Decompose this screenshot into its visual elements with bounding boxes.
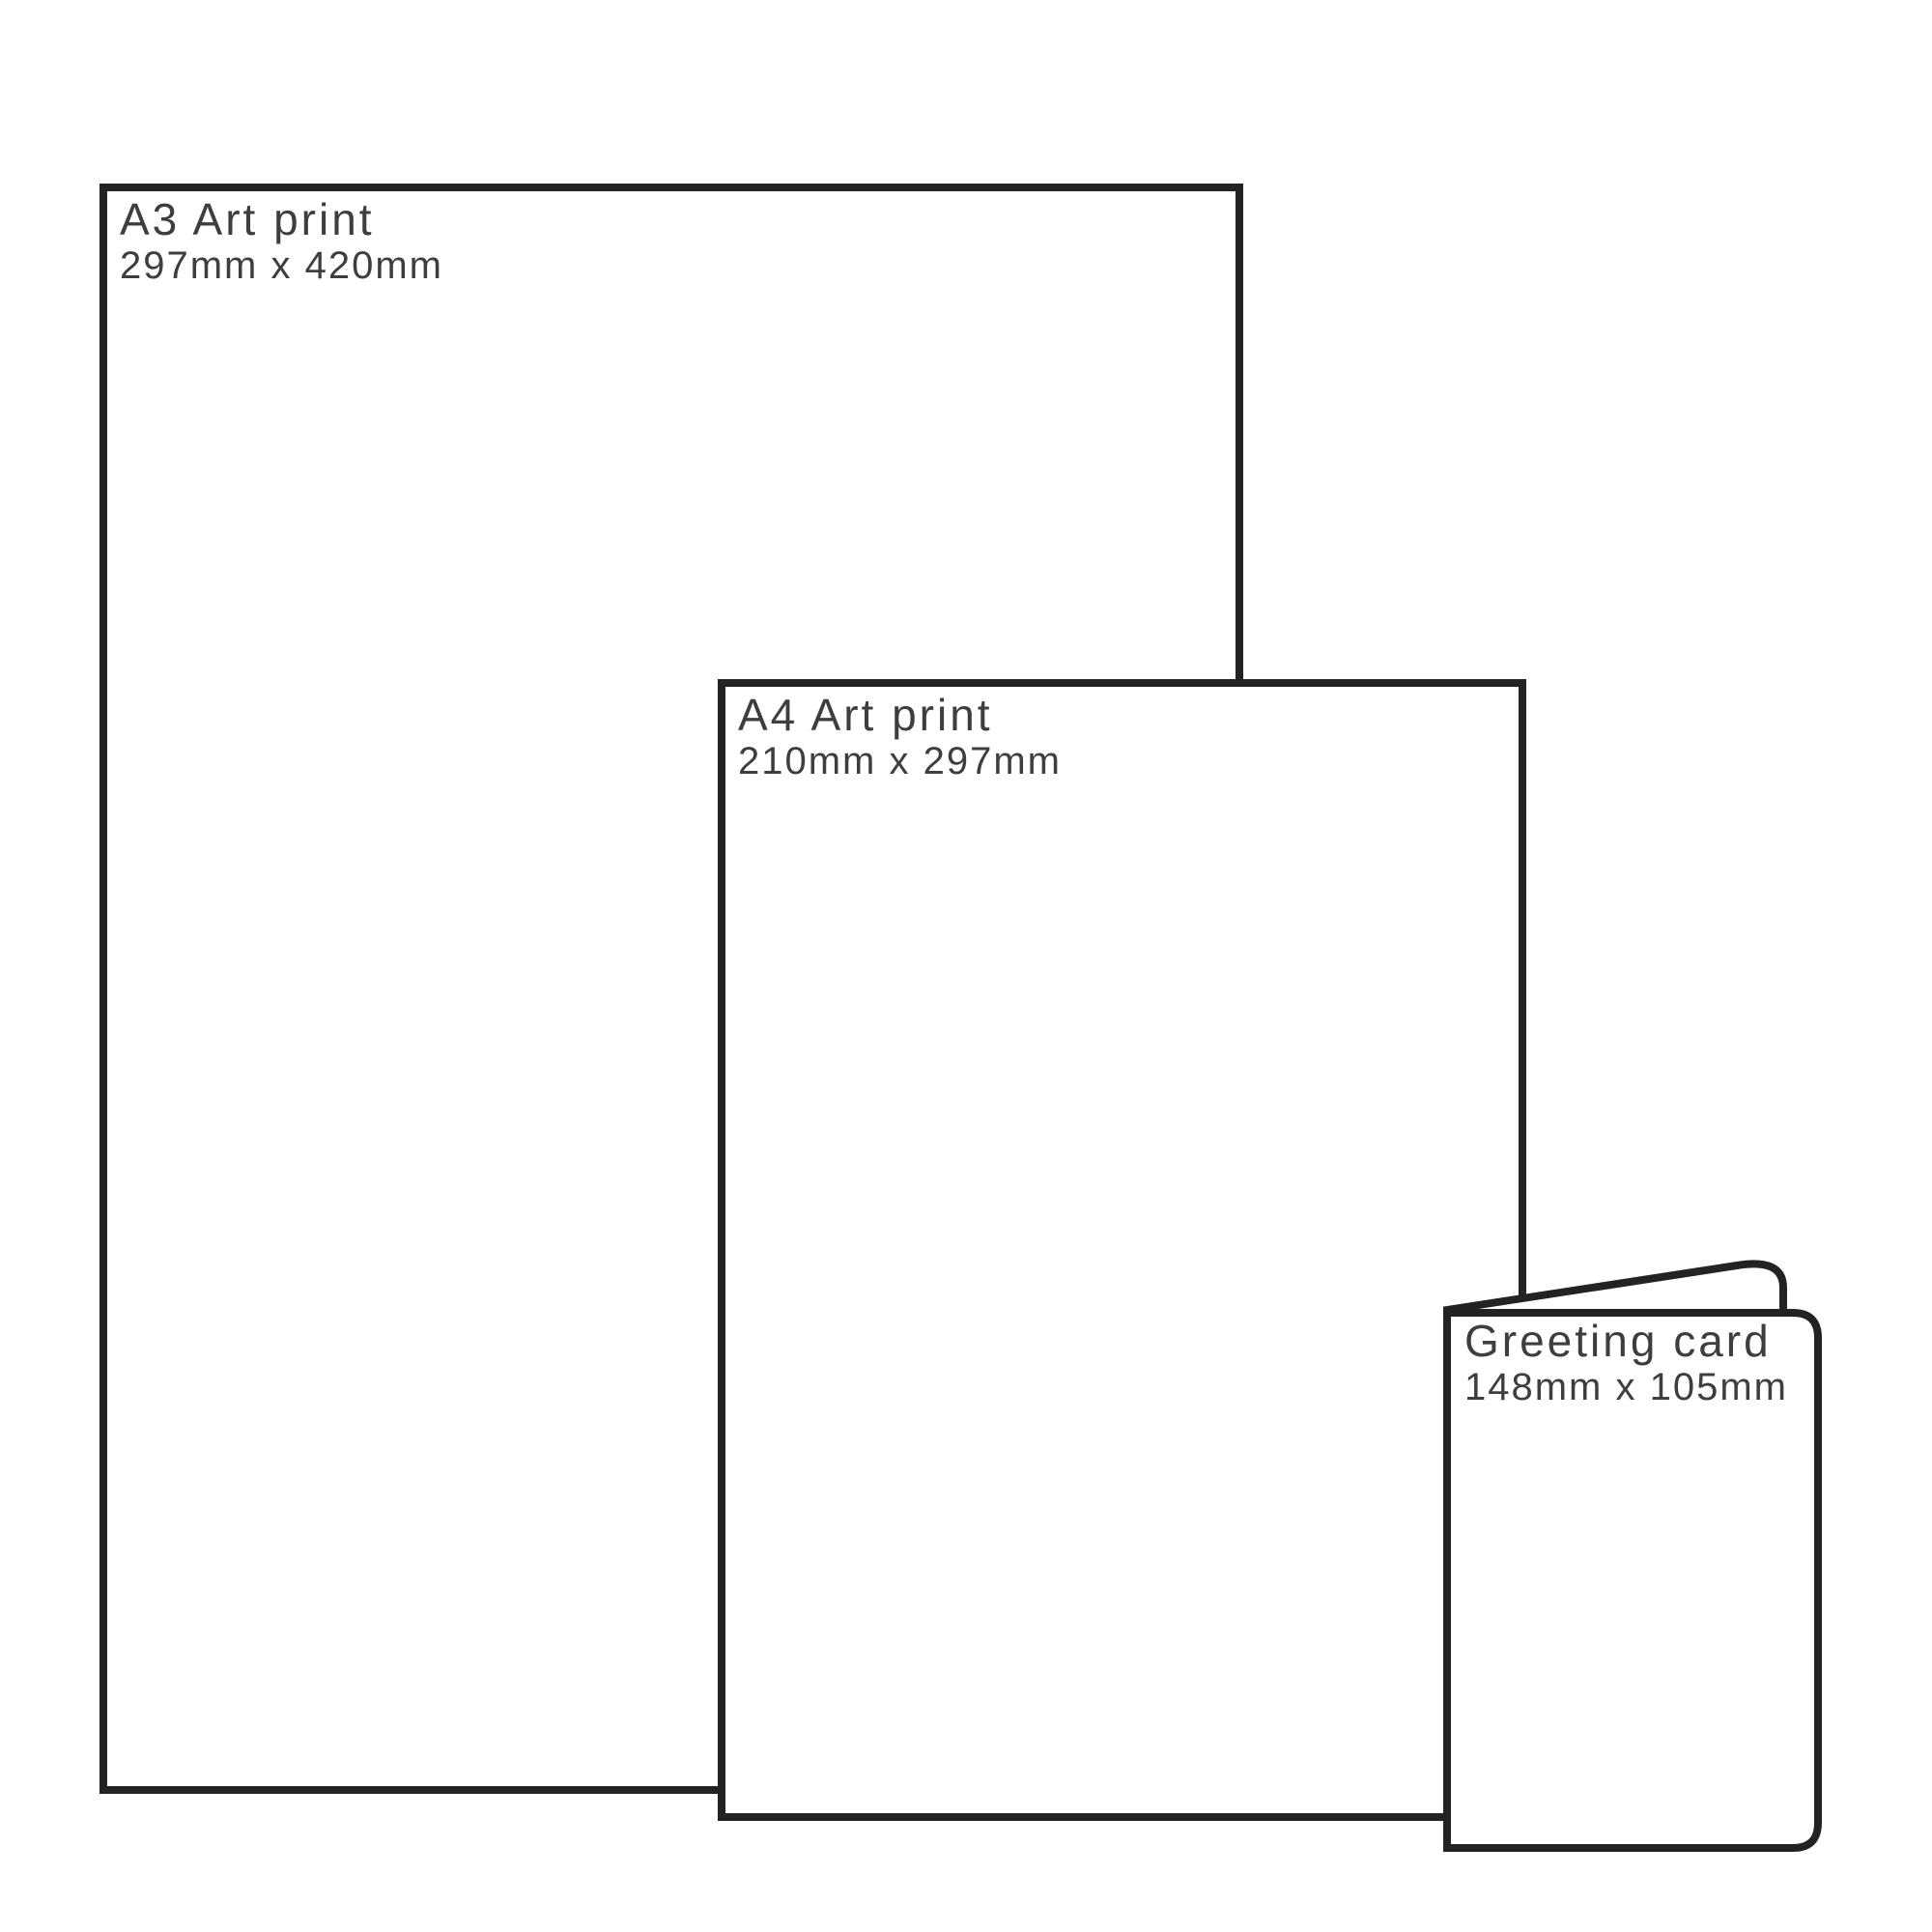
- a4-title: A4 Art print: [738, 692, 1062, 739]
- a4-label: A4 Art print 210mm x 297mm: [738, 692, 1062, 783]
- a3-dimensions: 297mm x 420mm: [120, 243, 443, 288]
- greeting-card-back-panel: [1447, 1264, 1783, 1315]
- a3-label: A3 Art print 297mm x 420mm: [120, 196, 443, 288]
- a4-dimensions: 210mm x 297mm: [738, 739, 1062, 783]
- greeting-card-label: Greeting card 148mm x 105mm: [1464, 1318, 1788, 1409]
- greeting-card-title: Greeting card: [1464, 1318, 1788, 1365]
- greeting-card-dimensions: 148mm x 105mm: [1464, 1365, 1788, 1409]
- a3-title: A3 Art print: [120, 196, 443, 243]
- print-size-comparison-diagram: A3 Art print 297mm x 420mm A4 Art print …: [0, 0, 1932, 1932]
